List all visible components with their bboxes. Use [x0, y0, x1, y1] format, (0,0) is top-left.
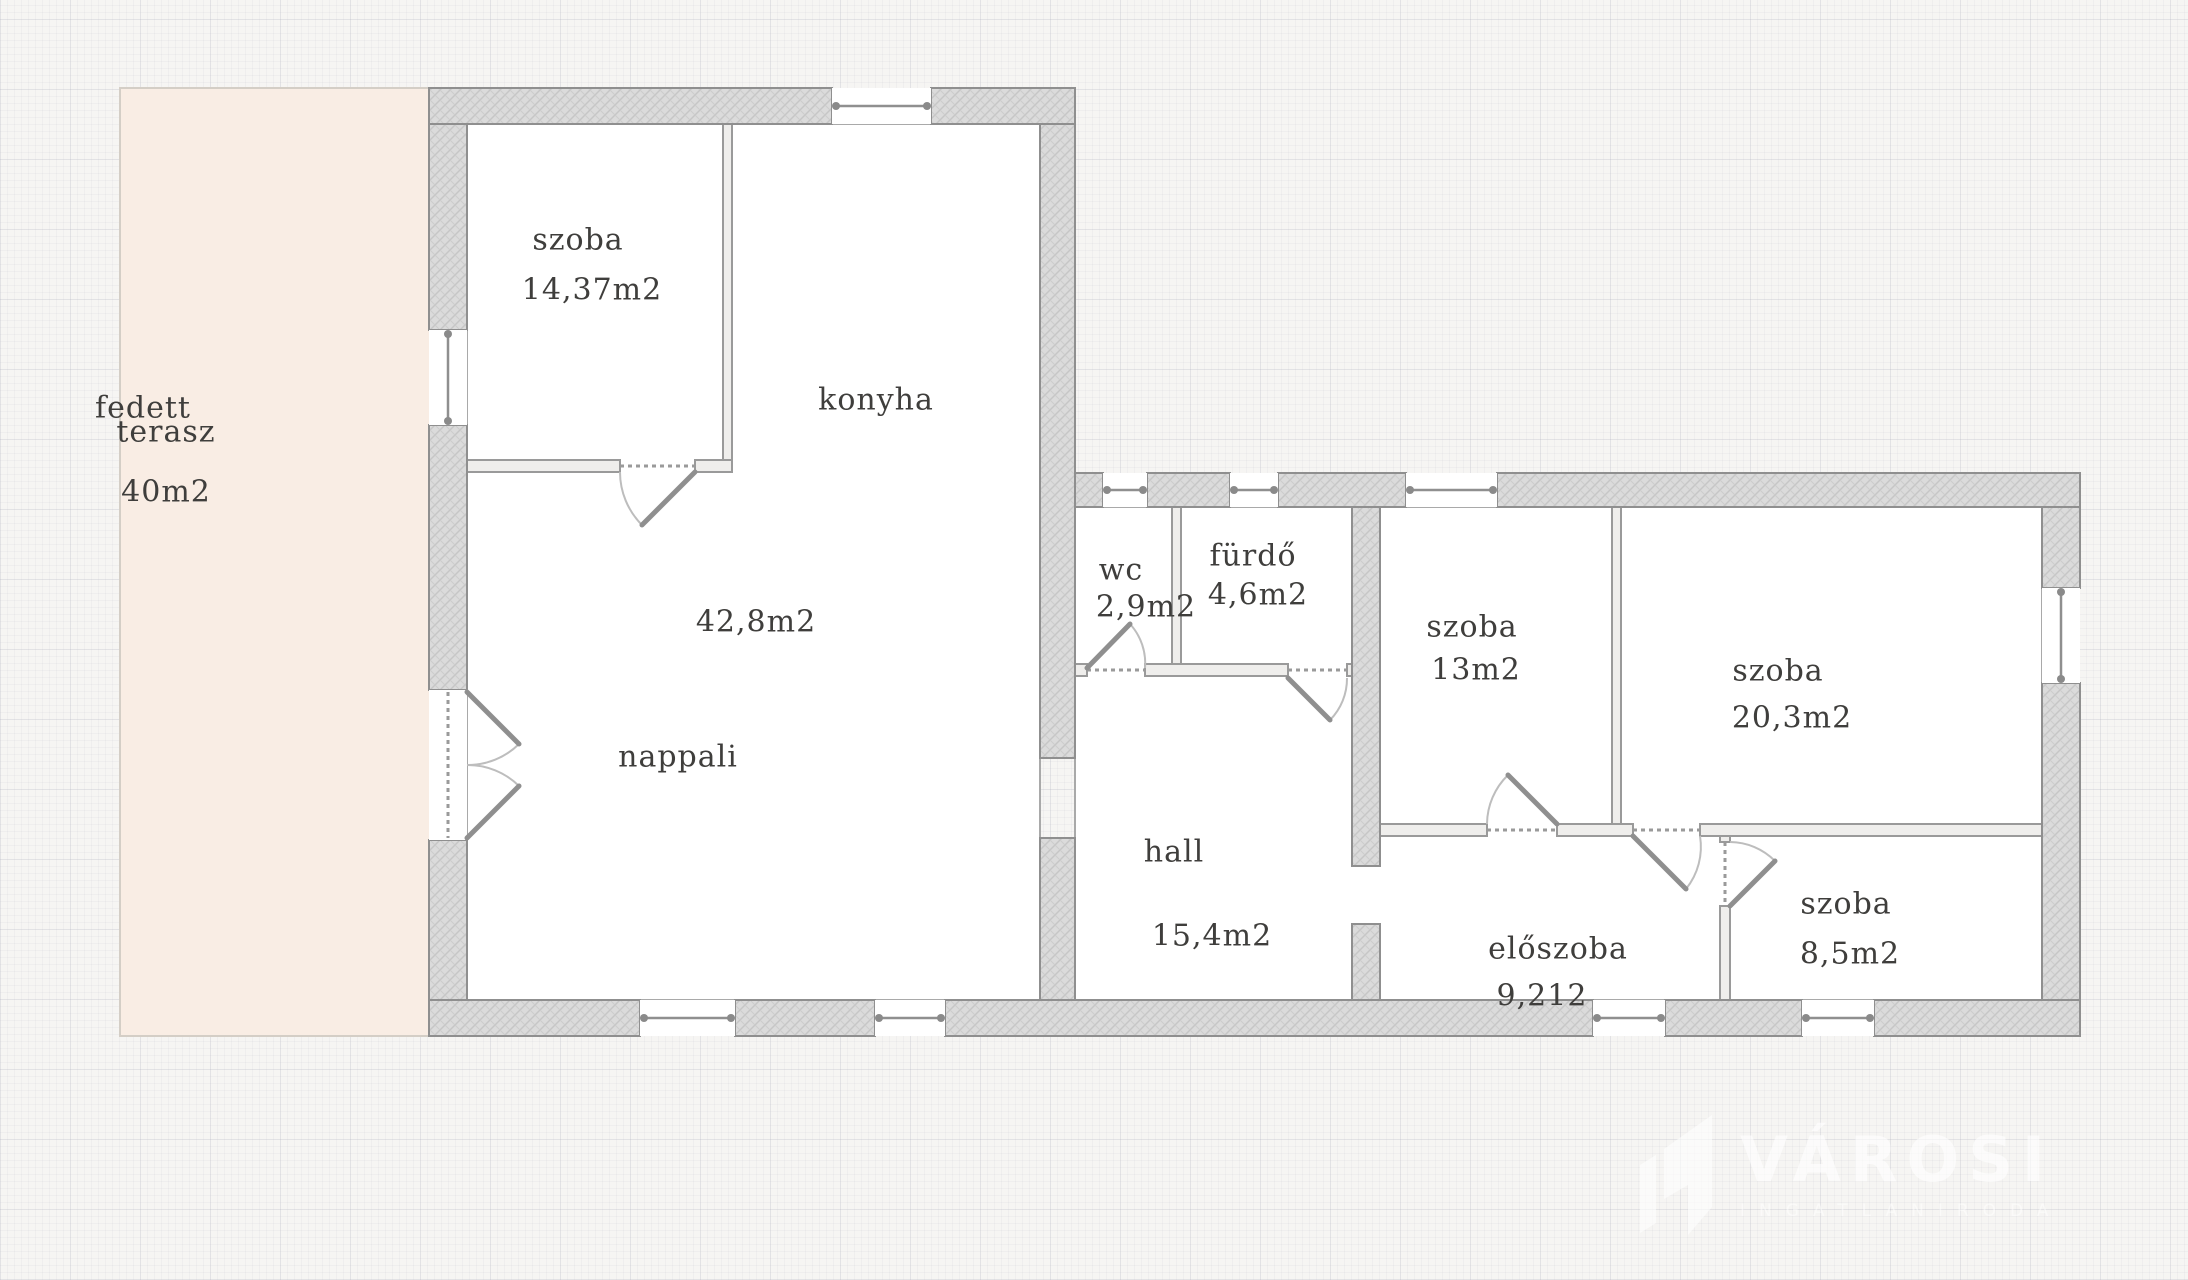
label-entry-area: 9,212	[1497, 979, 1588, 1014]
label-room4-area: 8,5m2	[1800, 937, 1900, 972]
label-room2-area: 13m2	[1431, 653, 1521, 688]
label-room3-name: szoba	[1732, 654, 1823, 689]
label-terrace-area: 40m2	[121, 475, 211, 510]
label-wc-area: 2,9m2	[1096, 590, 1196, 625]
label-room4-name: szoba	[1800, 887, 1891, 922]
label-room2-name: szoba	[1426, 610, 1517, 645]
label-entry-name: előszoba	[1488, 932, 1628, 967]
label-terrace-line2: terasz	[116, 415, 215, 450]
terrace-floor	[120, 88, 433, 1036]
label-kitchen-name: konyha	[818, 383, 934, 418]
label-bathroom-area: 4,6m2	[1208, 578, 1308, 613]
label-wc-name: wc	[1099, 553, 1143, 588]
floor-plan-canvas: fedett terasz 40m2 szoba 14,37m2 konyha …	[0, 0, 2188, 1280]
label-room1-area: 14,37m2	[522, 273, 662, 308]
label-living-area: 42,8m2	[696, 605, 816, 640]
label-bathroom-name: fürdő	[1209, 539, 1296, 574]
floor-plan-drawing	[0, 0, 2188, 1280]
label-room3-area: 20,3m2	[1732, 701, 1852, 736]
label-hall-area: 15,4m2	[1152, 919, 1272, 954]
label-room1-name: szoba	[532, 223, 623, 258]
label-living-name: nappali	[618, 740, 738, 775]
label-hall-name: hall	[1144, 835, 1204, 870]
